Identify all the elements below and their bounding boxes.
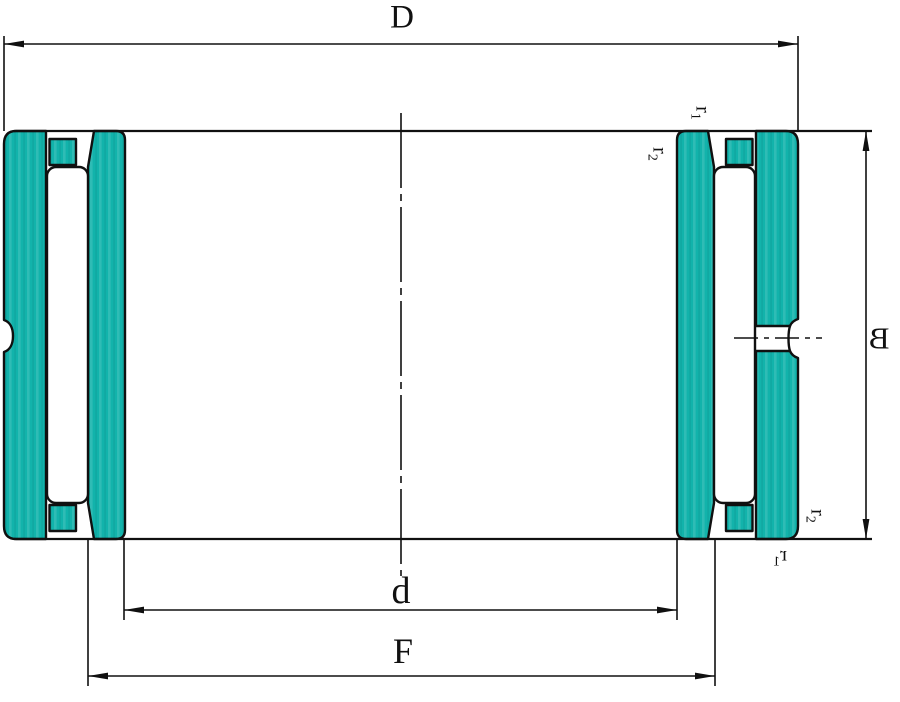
- drawing-canvas: [0, 0, 900, 702]
- dim-label-r1-top: r1: [688, 106, 713, 120]
- roller-right-bottom: [726, 505, 753, 531]
- r2-bottom-base: r: [807, 509, 829, 516]
- dim-label-r2-top: r2: [645, 147, 670, 161]
- outer-ring-right-wall-top: [756, 131, 798, 326]
- roller-left-top: [50, 139, 77, 165]
- r1-top-base: r: [692, 106, 714, 113]
- roller-left-bottom: [50, 505, 77, 531]
- r1-bottom-sub: 1: [773, 555, 780, 570]
- r2-bottom-sub: 2: [803, 516, 818, 523]
- roller-right-top: [726, 139, 753, 165]
- r1-bottom-base: r: [780, 544, 787, 566]
- r2-top-sub: 2: [645, 154, 660, 161]
- outer-ring-right-wall-bottom: [756, 351, 798, 539]
- dim-label-r1-bottom: r1: [773, 545, 787, 570]
- dim-label-r2-bottom: r2: [803, 509, 828, 523]
- inner-ring-left-wall: [88, 131, 125, 539]
- r1-top-sub: 1: [688, 113, 703, 120]
- cage-window-left: [47, 167, 88, 503]
- inner-ring-right-wall: [677, 131, 714, 539]
- dim-label-B: B: [869, 323, 890, 354]
- r2-top-base: r: [649, 147, 671, 154]
- dim-label-F: F: [393, 633, 413, 669]
- bearing-technical-drawing: D d F B r1 r2 r2 r1: [0, 0, 900, 702]
- dim-label-d: d: [392, 572, 411, 610]
- dim-label-D: D: [390, 2, 414, 35]
- cage-window-right: [714, 167, 755, 503]
- outer-ring-left-wall: [4, 131, 46, 539]
